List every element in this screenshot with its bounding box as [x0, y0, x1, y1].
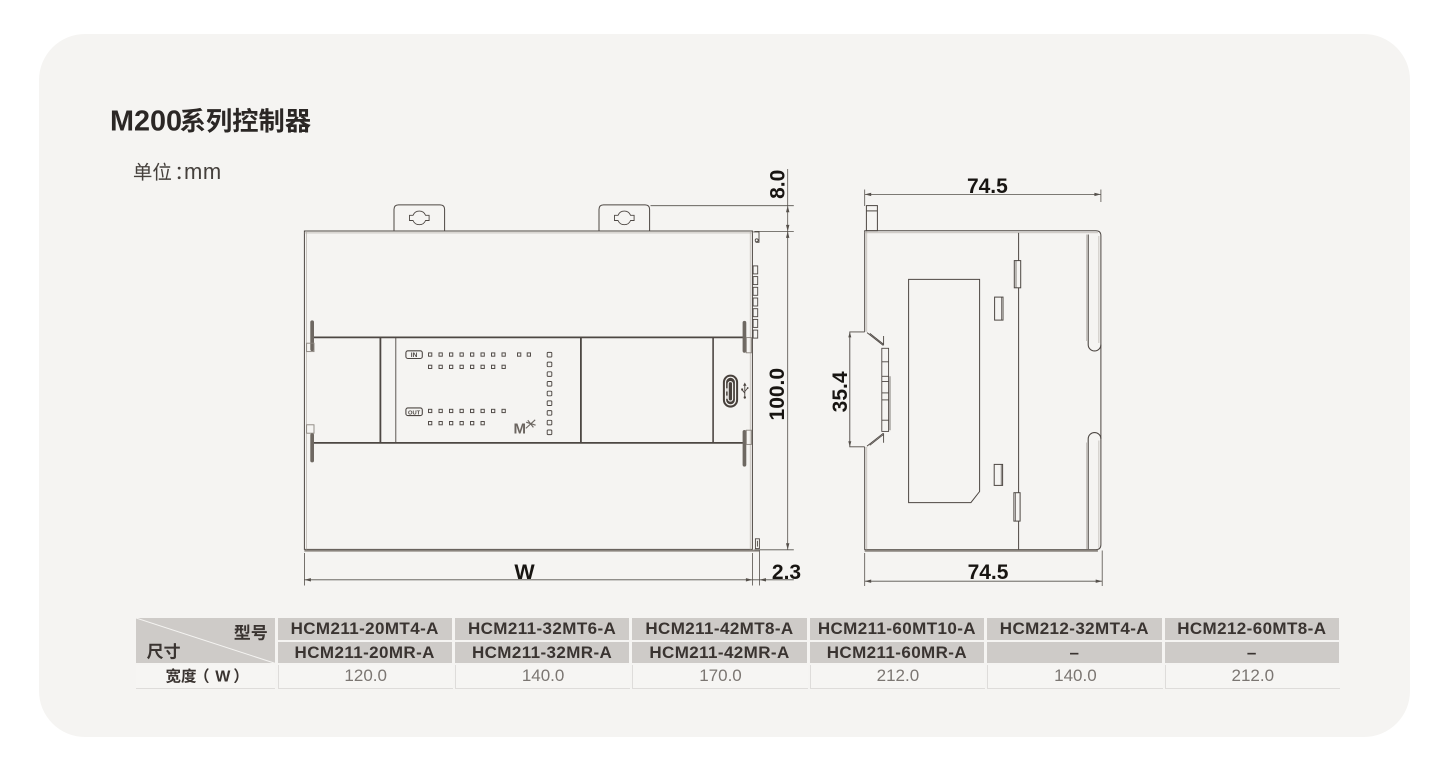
svg-text:74.5: 74.5 [968, 561, 1009, 584]
svg-text:W: W [215, 668, 231, 685]
svg-text:74.5: 74.5 [967, 175, 1008, 198]
svg-text:OUT: OUT [408, 410, 421, 416]
svg-text:M200: M200 [110, 105, 182, 137]
svg-text:35.4: 35.4 [829, 371, 852, 412]
svg-text:mm: mm [184, 159, 222, 184]
svg-text:2.3: 2.3 [772, 561, 801, 584]
svg-text:8.0: 8.0 [767, 170, 790, 199]
svg-text:W: W [514, 560, 535, 584]
svg-text:M: M [514, 420, 527, 437]
svg-text:100.0: 100.0 [766, 368, 789, 421]
svg-text:IN: IN [411, 352, 418, 359]
